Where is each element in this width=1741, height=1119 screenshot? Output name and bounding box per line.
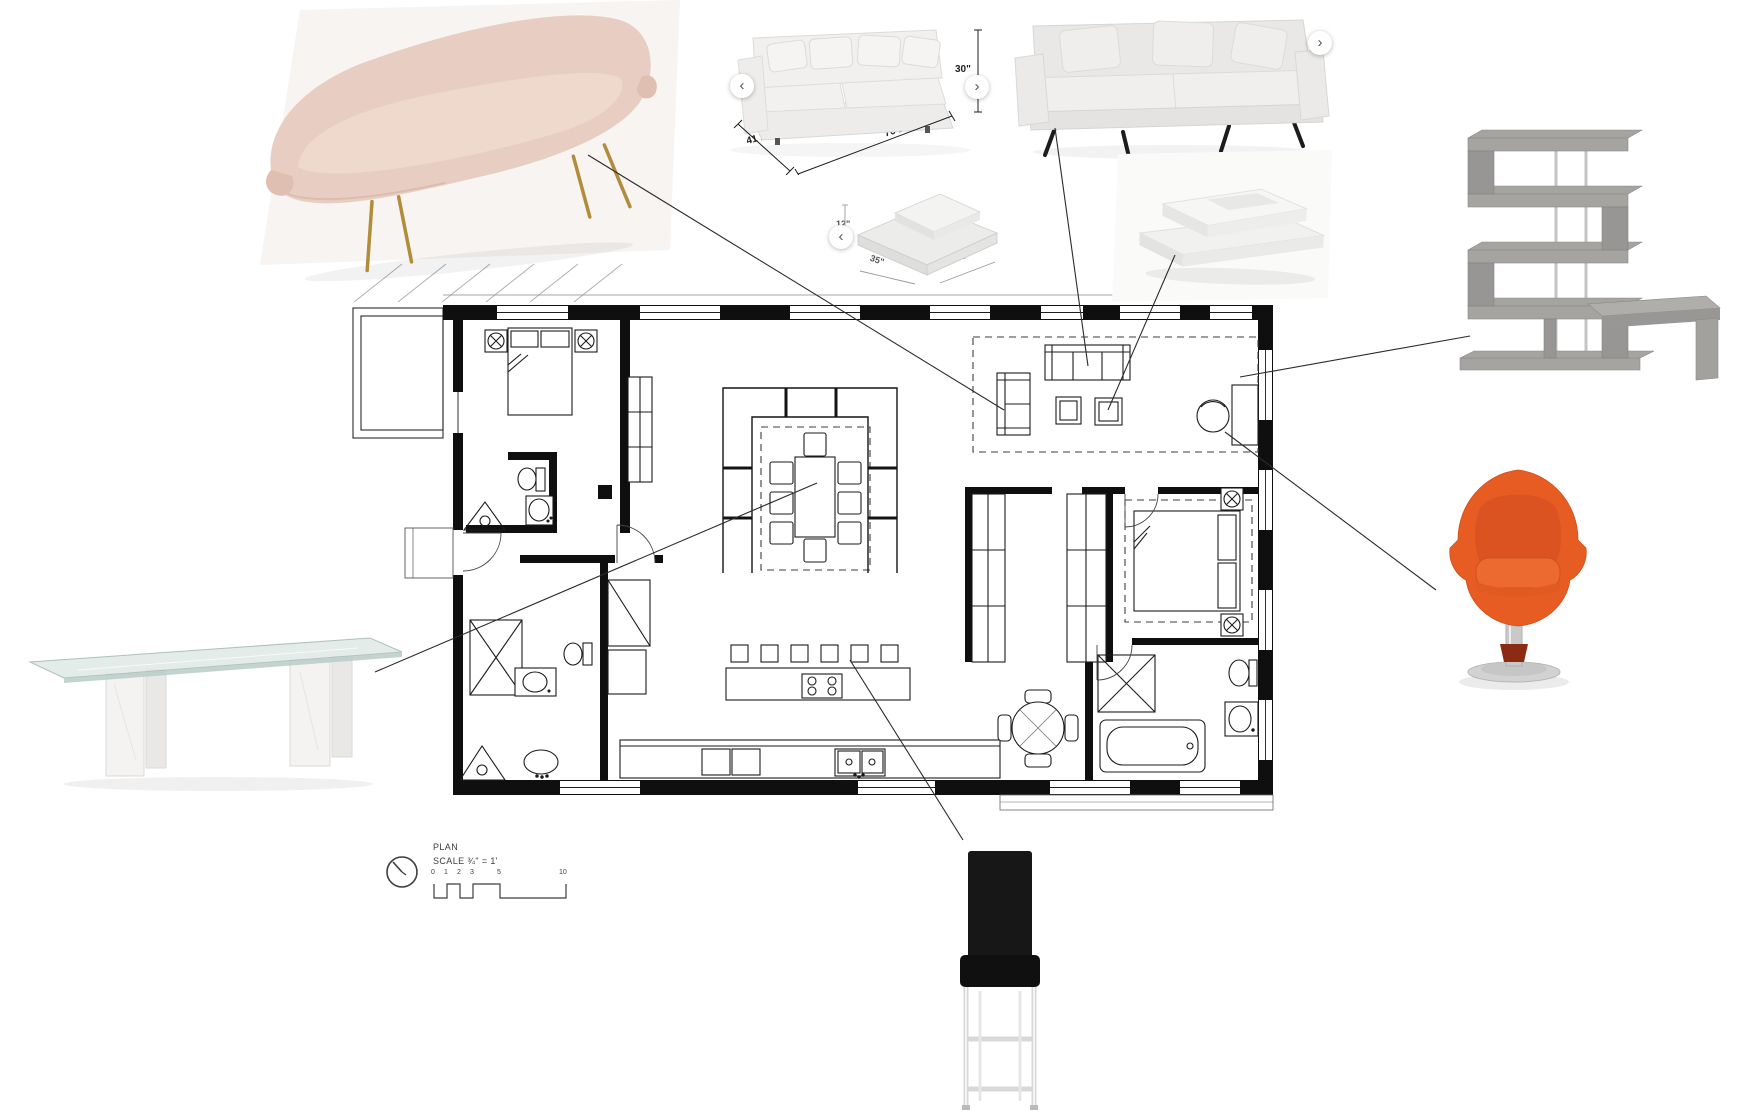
- orange-chair-illustration: [1428, 448, 1600, 700]
- closet-bedroom1: [628, 377, 652, 482]
- sink2-symbol: [515, 668, 556, 696]
- scale-tick-2: 2: [457, 869, 461, 876]
- scale-tick-10: 10: [559, 869, 567, 876]
- scale-tick-3: 3: [470, 869, 474, 876]
- shelf-desk-illustration: [1438, 108, 1723, 386]
- white-coffee-table-illustration: [1110, 148, 1338, 306]
- sink3-symbol: [524, 750, 558, 778]
- kitchen-counter: [620, 740, 1000, 778]
- north-indicator: [384, 854, 420, 890]
- rear-step: [1000, 795, 1273, 810]
- scale-tick-1: 1: [444, 869, 448, 876]
- sofa3-symbol: [1045, 345, 1130, 380]
- coffee-table-symbols: [1056, 397, 1122, 425]
- glass-table-illustration: [18, 600, 410, 795]
- sofa2-symbol: [997, 373, 1030, 435]
- kitchen-island: [726, 645, 910, 700]
- kitchen-sink-symbol: [835, 749, 885, 778]
- sink4-symbol: [1225, 702, 1258, 736]
- plan-scale-label: SCALE ¾" = 1': [433, 856, 498, 866]
- product-shelf-desk[interactable]: [1438, 108, 1723, 386]
- sink1-symbol: [526, 496, 553, 525]
- carousel-prev-button-2[interactable]: ‹: [829, 225, 853, 249]
- desk-chair-symbol: [1197, 385, 1258, 445]
- door-post: [598, 485, 612, 499]
- toilet3-symbol: [1229, 660, 1257, 686]
- product-bar-stool[interactable]: [928, 843, 1064, 1115]
- bed1-symbol: [508, 328, 572, 415]
- dining-table-symbol: [770, 433, 861, 562]
- washer-symbol: [470, 620, 522, 695]
- toilet1-symbol: [518, 468, 545, 491]
- cooktop-symbol: [802, 674, 842, 698]
- product-blush-sofa[interactable]: [240, 0, 685, 290]
- shower-door2: [460, 746, 505, 780]
- product-white-coffee-table[interactable]: [1110, 148, 1338, 306]
- product-plain-sofa[interactable]: [1003, 0, 1333, 162]
- deck: [353, 308, 443, 438]
- bar-stool-illustration: [928, 843, 1064, 1115]
- plan-furniture: [460, 328, 1258, 780]
- carousel-next-button[interactable]: ›: [965, 75, 989, 99]
- scale-tick-0: 0: [431, 869, 435, 876]
- moodboard-canvas: { "canvas": {"width": 1741, "height": 11…: [0, 0, 1741, 1119]
- carousel-next-button-2[interactable]: ›: [1308, 31, 1332, 55]
- pantry-symbols: [608, 580, 650, 694]
- plain-sofa-illustration: [1003, 0, 1333, 162]
- tub-symbol: [1100, 720, 1205, 772]
- bed2-symbol: [1134, 511, 1240, 611]
- round-table-symbol: [998, 690, 1078, 767]
- floor-plan: [352, 262, 1277, 818]
- scale-tick-5: 5: [497, 869, 501, 876]
- plan-title: PLAN: [433, 842, 458, 852]
- product-orange-swivel-chair[interactable]: [1428, 448, 1600, 700]
- carousel-prev-button[interactable]: ‹: [730, 74, 754, 98]
- toilet2-symbol: [564, 643, 592, 665]
- product-glass-dining-table[interactable]: [18, 600, 410, 795]
- hall-closets: [972, 494, 1106, 662]
- scale-bar: [430, 880, 575, 906]
- entry-step: [405, 528, 453, 578]
